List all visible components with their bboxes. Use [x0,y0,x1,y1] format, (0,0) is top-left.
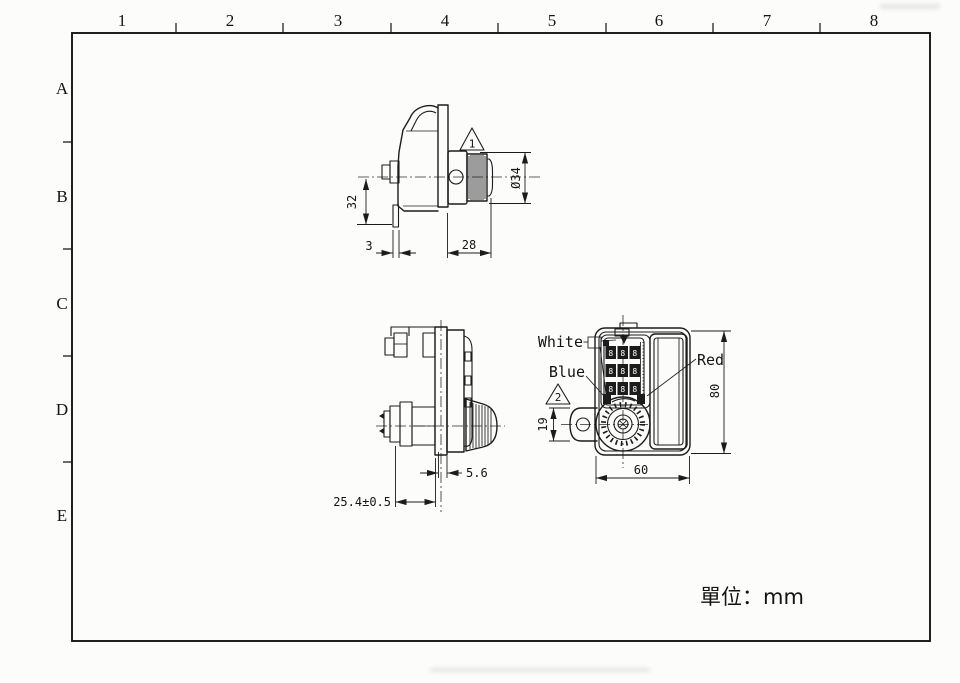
housing-clip [411,111,436,131]
row-ref: D [56,400,68,419]
wheel-digit: 8 [632,385,637,394]
index-arrow [620,336,628,344]
dim-28: 28 [462,238,476,252]
front-view: 8 8 8 8 8 8 8 8 8 [536,315,731,484]
border-rect [72,33,930,641]
column-ref: 4 [441,11,450,30]
column-ref: 3 [334,11,343,30]
dim-25-4: 25.4±0.5 [333,495,391,509]
dim-80: 80 [708,384,722,398]
drawing-sheet: 1 2 3 4 5 6 7 8 A B C D E [0,0,960,683]
wheel-digit: 8 [620,385,625,394]
top-block [423,333,435,357]
sheet-frame: 1 2 3 4 5 6 7 8 A B C D E [56,11,930,641]
dim-32: 32 [345,195,359,209]
label-red: Red [697,351,724,369]
wheel-digit: 8 [620,367,625,376]
row-ref: E [57,506,67,525]
cam-hub [400,402,412,446]
wheel-digit: 8 [620,349,625,358]
column-ref: 5 [548,11,557,30]
wheel-digit: 8 [608,349,613,358]
dim-3: 3 [365,239,372,253]
column-ref: 6 [655,11,664,30]
door-panel [650,334,687,449]
dial-cap [487,159,493,196]
label-white: White [538,333,583,351]
knob-body [394,333,407,357]
cam-washer [384,411,390,437]
body-slab [447,330,464,452]
drawing-canvas: 1 2 3 4 5 6 7 8 A B C D E [0,0,960,683]
body-tab [465,352,471,361]
wheel-digit: 8 [608,367,613,376]
cam-spacer [390,406,400,442]
body-tab [465,376,471,385]
dim-5-6: 5.6 [466,466,488,480]
knurl-hatch [469,155,485,200]
hub-cross [620,421,626,427]
knob-tip [385,338,394,355]
column-ref: 2 [226,11,235,30]
column-ref: 7 [763,11,772,30]
wheel-digit: 8 [632,367,637,376]
note-flag-number: 2 [555,391,562,404]
wheel-digit: 8 [632,349,637,358]
dim-60: 60 [634,463,648,477]
lock-housing [398,106,438,211]
column-ref: 8 [870,11,879,30]
reset-swoosh [612,399,635,402]
ext-line [393,230,399,258]
row-ref: C [56,294,67,313]
top-side-view: 1 32 3 28 Ø34 [345,105,543,258]
housing-inner-lines [403,131,438,206]
screw-tip [379,428,384,434]
ext-line [396,446,436,507]
latch-bar [393,205,399,227]
door-panel-lines [658,338,679,445]
wheel-digit: 8 [608,385,613,394]
flange-plate [438,105,448,207]
screw-tip [379,413,384,419]
dim-d34: Ø34 [509,167,523,189]
column-ticks [176,23,820,33]
bottom-side-view: 5.6 25.4±0.5 [333,320,505,512]
row-ref: B [56,187,67,206]
top-bracket [391,327,437,336]
unit-label: 單位：mm [700,585,804,609]
ext-line [439,452,448,478]
note-flag-number: 1 [469,138,476,151]
row-ref: A [56,79,69,98]
column-ref: 1 [118,11,127,30]
dial-neck [448,151,467,204]
dim-19: 19 [536,417,550,431]
knurl-hatch [470,402,491,449]
label-blue: Blue [549,363,585,381]
top-tab [620,323,637,328]
